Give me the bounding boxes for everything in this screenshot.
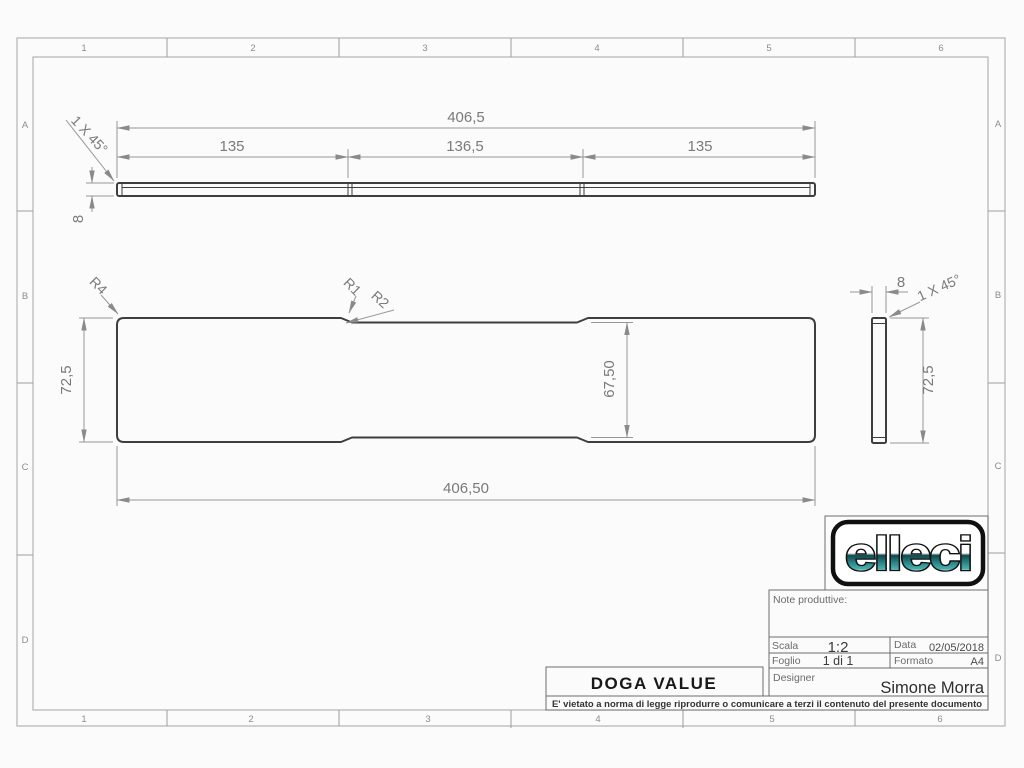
- grid-col-label: 4: [595, 714, 600, 725]
- foglio-label: Foglio: [772, 655, 801, 667]
- grid-col-label: 2: [248, 714, 253, 725]
- data-label: Data: [894, 639, 916, 651]
- plan-view-outline: [117, 318, 815, 442]
- dim-front-seg-mid: 136,5: [446, 138, 484, 155]
- grid-row-label: C: [995, 461, 1002, 472]
- dim-front-seg-left: 135: [219, 138, 244, 155]
- scala-label: Scala: [772, 640, 798, 652]
- grid-col-label: 5: [766, 43, 771, 54]
- dim-side-width: 8: [897, 274, 905, 291]
- grid-row-label: D: [995, 653, 1002, 664]
- front-view-outline: [117, 183, 815, 196]
- dim-front-total: 406,5: [447, 109, 485, 126]
- designer-label: Designer: [773, 672, 816, 684]
- dim-plan-height: 72,5: [58, 365, 75, 394]
- dim-front-seg-right: 135: [687, 138, 712, 155]
- grid-col-label: 2: [250, 43, 255, 54]
- company-logo: elleci: [825, 516, 988, 590]
- side-view-outline: [872, 318, 886, 443]
- grid-col-label: 1: [81, 43, 86, 54]
- grid-row-label: A: [22, 120, 29, 131]
- dim-front-thickness: 8: [70, 215, 87, 223]
- grid-col-label: 3: [422, 43, 427, 54]
- dim-plan-total: 406,50: [443, 480, 489, 497]
- cad-drawing-sheet: 1 2 3 4 5 6 1 2 3 4 5 6 A B C D A B C D: [0, 0, 1024, 768]
- grid-row-label: C: [22, 462, 29, 473]
- notes-label: Note produttive:: [773, 594, 847, 606]
- formato-label: Formato: [894, 655, 933, 667]
- dim-side-height: 72,5: [920, 365, 937, 394]
- grid-col-label: 6: [938, 43, 943, 54]
- grid-col-label: 4: [594, 43, 599, 54]
- grid-col-label: 6: [937, 714, 942, 725]
- grid-row-label: B: [22, 291, 28, 302]
- grid-col-label: 5: [769, 714, 774, 725]
- part-name: DOGA VALUE: [591, 674, 717, 693]
- formato-value: A4: [971, 656, 984, 668]
- grid-row-label: A: [995, 119, 1002, 130]
- grid-row-label: D: [22, 635, 29, 646]
- dim-plan-inner-height: 67,50: [601, 360, 618, 398]
- foglio-value: 1 di 1: [823, 654, 854, 668]
- grid-col-label: 3: [425, 714, 430, 725]
- logo-text: elleci: [845, 527, 971, 580]
- data-value: 02/05/2018: [929, 642, 984, 654]
- disclaimer-text: E' vietato a norma di legge riprodurre o…: [552, 699, 983, 709]
- grid-row-label: B: [995, 290, 1001, 301]
- designer-value: Simone Morra: [880, 679, 984, 697]
- grid-col-label: 1: [81, 714, 86, 725]
